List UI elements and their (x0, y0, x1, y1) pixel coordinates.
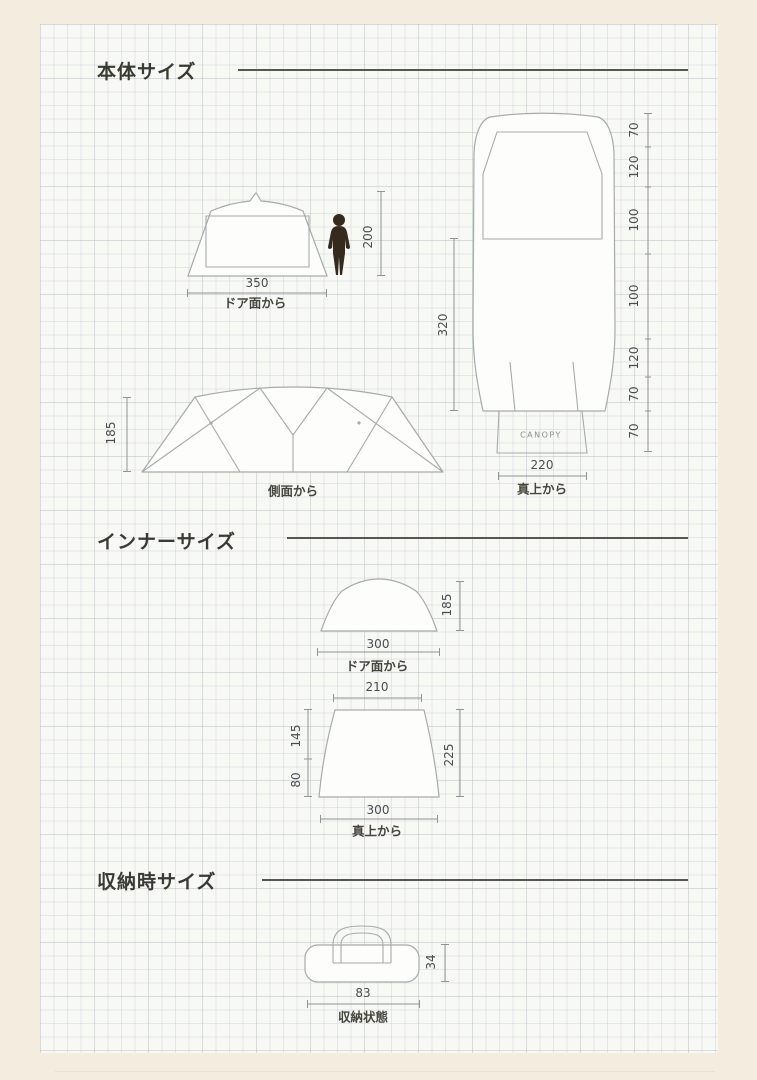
inner-top-caption: 真上から (352, 821, 402, 840)
dimension-line-225 (456, 709, 464, 797)
divider-line (238, 69, 688, 71)
segment-label: 100 (627, 209, 641, 232)
segment-label: 70 (627, 386, 641, 401)
inner-bottom-width-label: 300 (367, 803, 390, 817)
segment-label: 70 (627, 122, 641, 137)
inner-tent-top-view (315, 707, 443, 800)
section-title-body-size: 本体サイズ (97, 57, 196, 84)
divider-line (262, 879, 688, 881)
dimension-line-210 (333, 694, 422, 702)
segment-label: 70 (627, 423, 641, 438)
side-height-label: 185 (104, 422, 118, 445)
bag-caption: 収納状態 (338, 1007, 388, 1026)
inner-depth-lower-label: 80 (289, 772, 303, 787)
dimension-line-34 (441, 944, 449, 982)
section-title-inner-size: インナーサイズ (97, 527, 236, 554)
inner-width-label: 300 (367, 637, 390, 651)
dimension-line-200 (377, 191, 385, 276)
top-width-label: 220 (531, 458, 554, 472)
front-width-label: 350 (246, 276, 269, 290)
person-figure (326, 213, 352, 277)
segment-label: 100 (627, 285, 641, 308)
inner-top-width-label: 210 (366, 680, 389, 694)
dimension-line-145-80 (304, 709, 312, 797)
inner-depth-upper-label: 145 (289, 725, 303, 748)
inner-front-caption: ドア面から (346, 656, 409, 675)
inner-height-label: 185 (440, 594, 454, 617)
section-title-storage-size: 収納時サイズ (97, 867, 216, 894)
divider-line (287, 537, 688, 539)
segment-label: 120 (627, 347, 641, 370)
dimension-line-185-side (123, 397, 131, 472)
person-height-label: 200 (361, 226, 375, 249)
bag-width-label: 83 (355, 986, 370, 1000)
top-view-caption: 真上から (517, 479, 567, 498)
spec-sheet: { "page": { "outer_bg": "#f5ece0", "pane… (0, 0, 757, 1080)
side-view-caption: 側面から (268, 481, 318, 500)
inner-tent-front-view (318, 577, 440, 633)
segment-dimension-line (644, 113, 652, 452)
bag-height-label: 34 (424, 954, 438, 969)
inner-depth-total-label: 225 (442, 744, 456, 767)
top-depth-label: 320 (436, 314, 450, 337)
dimension-line-185-inner (456, 581, 464, 631)
page-bottom-edge (55, 1071, 715, 1072)
carry-bag (303, 924, 423, 984)
tent-top-view (468, 109, 620, 457)
front-view-caption: ドア面から (224, 293, 287, 312)
tent-front-view (185, 189, 330, 279)
canopy-label: CANOPY (520, 431, 562, 440)
tent-side-view (125, 387, 445, 475)
segment-label: 120 (627, 156, 641, 179)
dimension-line-320 (450, 238, 458, 411)
grid-panel: 本体サイズ 200 350 ドア面から CANOPY 320 (40, 24, 718, 1053)
